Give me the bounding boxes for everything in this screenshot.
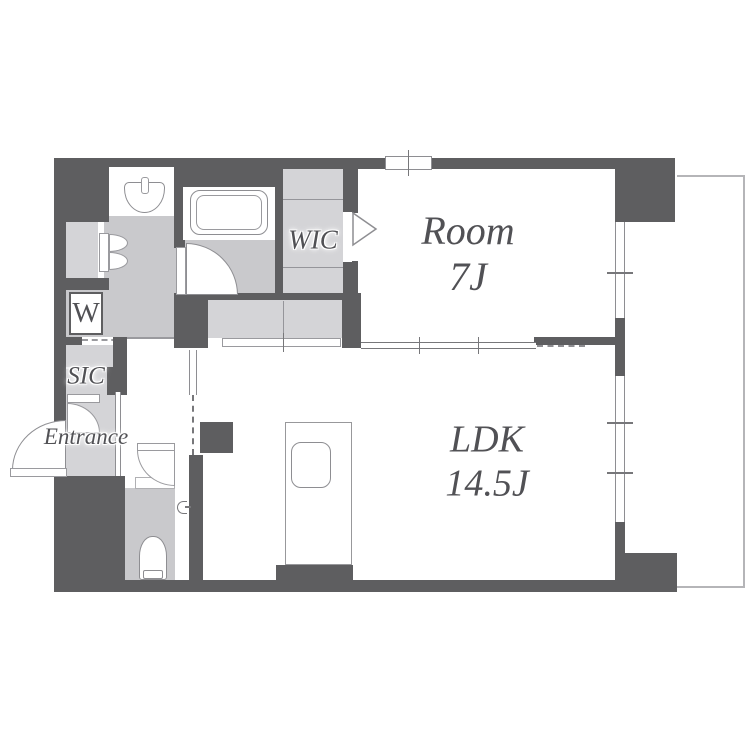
wall-bath-top (185, 158, 275, 187)
wall-bottom-left-mass (54, 476, 125, 592)
ldk-label: LDK 14.5J (445, 418, 528, 505)
wall-right-mid (615, 318, 625, 376)
wall-dash-left (54, 337, 82, 345)
wic-shelf-line-2 (283, 267, 343, 268)
washing-machine-box: W (69, 292, 103, 335)
wic-door-gap (343, 212, 352, 262)
kitchen-sink-icon (291, 442, 331, 488)
sic-label: SIC (67, 363, 105, 392)
wall-toilet-right (189, 455, 203, 580)
door-handle-bar (185, 506, 191, 508)
ldk-window-tick-2 (607, 472, 633, 474)
toilet-seat (143, 570, 163, 579)
wall-wic-right-upper (343, 168, 358, 213)
hall-ldk-opening (189, 350, 197, 395)
top-vent-tick (408, 150, 409, 176)
wall-ldk-pillar (200, 422, 233, 453)
sliding-track-tick-1 (419, 337, 420, 354)
room-window-tick (607, 272, 633, 274)
closet-door-tick (283, 333, 284, 352)
ldk-name: LDK (445, 418, 528, 462)
ldk-window-tick-1 (607, 422, 633, 424)
closet-floor (208, 300, 342, 338)
bathtub-inner (196, 195, 262, 230)
room-window (615, 222, 625, 318)
wall-closet-right (342, 293, 361, 348)
wall-kitchen-stub (276, 565, 353, 580)
hall-ldk-sliding-door (192, 395, 194, 455)
floor-plan: W Room 7J LDK 14.5J WIC S (0, 0, 750, 750)
washer-label: W (72, 297, 99, 330)
room-ldk-pocket-dashes (537, 343, 585, 347)
wall-right-low (615, 521, 625, 554)
washroom-door-jamb (99, 233, 109, 272)
wall-bath-right (275, 158, 283, 300)
wic-shelf-line-1 (283, 199, 343, 200)
ldk-size: 14.5J (445, 462, 528, 506)
wall-bottom (125, 580, 677, 592)
room-ldk-sliding-track (361, 342, 536, 349)
wall-hall-corner (174, 293, 208, 348)
faucet-icon (141, 177, 149, 194)
ldk-window (615, 376, 625, 522)
wall-left-washer (54, 288, 63, 337)
sic-door-jamb (67, 394, 100, 403)
bath-door-leaf (176, 247, 186, 295)
sliding-track-tick-2 (478, 337, 479, 354)
entrance-door-leaf (10, 468, 67, 477)
closet-sliding-door (222, 338, 341, 347)
wall-ne-block (615, 158, 675, 222)
room-size: 7J (421, 254, 514, 300)
wic-label: WIC (288, 224, 338, 255)
meter-box-niche (66, 222, 98, 278)
entrance-label: Entrance (44, 424, 128, 450)
wic-door-arrow-icon (352, 211, 378, 247)
wall-sic-corner (107, 367, 117, 395)
room-label: Room 7J (421, 208, 514, 300)
room-name: Room (421, 208, 514, 254)
